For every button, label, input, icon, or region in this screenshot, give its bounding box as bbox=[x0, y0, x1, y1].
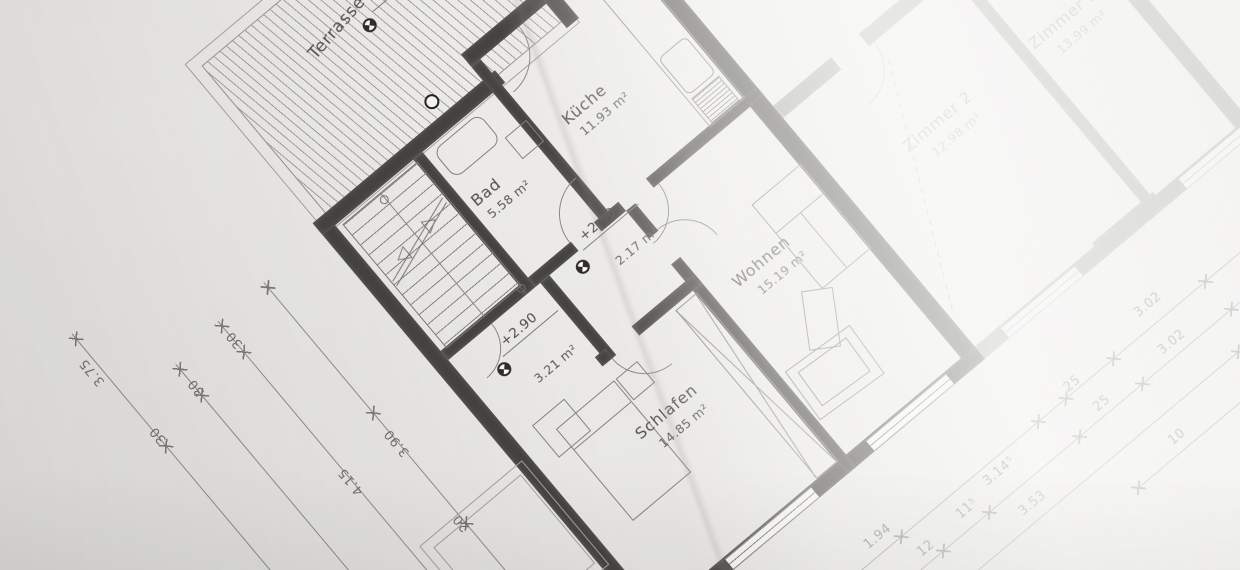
plan-detail-lines bbox=[0, 0, 1240, 570]
floor-plan-photo: Zimmer 2 12.98 m² Zimmer 3 13.99 m² bbox=[0, 0, 1240, 570]
floor-plan: Zimmer 2 12.98 m² Zimmer 3 13.99 m² bbox=[0, 0, 1240, 570]
